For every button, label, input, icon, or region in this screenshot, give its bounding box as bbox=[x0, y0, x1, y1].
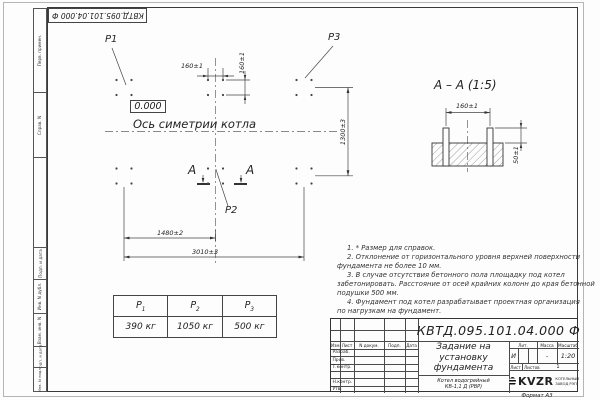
tb-doc-title: Задание на установку фундамента bbox=[418, 341, 509, 375]
dim-depth: 1300±3 bbox=[330, 127, 357, 136]
tb-row-tkontr: Т.контр. bbox=[333, 365, 352, 370]
kvzr-logo-caption: КОТЕЛЬНЫЙ ЗАВОД РЭП bbox=[555, 377, 579, 385]
tb-sheet-label: Лист bbox=[509, 365, 522, 370]
tb-lit-value: И bbox=[509, 348, 518, 363]
tb-scale-value: 1:20 bbox=[557, 348, 579, 363]
dim-total-width: 3010±3 bbox=[192, 248, 218, 256]
tb-scale-header: Масштаб bbox=[557, 343, 579, 348]
loads-table-value-row: 390 кг 1050 кг 500 кг bbox=[114, 317, 277, 338]
dim-section-protrusion: 50±1 bbox=[503, 150, 529, 159]
section-letter-right: А bbox=[246, 163, 254, 177]
note-line: фундамента не более 10 мм. bbox=[337, 262, 580, 271]
tb-row-utv: Утв. bbox=[333, 387, 342, 392]
tb-header-izm: Изм. bbox=[331, 343, 340, 348]
note-line: 1. * Размер для справок. bbox=[337, 244, 580, 253]
section-view-title: А – А (1:5) bbox=[434, 78, 497, 92]
plan-load-p1-label: Р1 bbox=[105, 34, 117, 45]
drawing-sheet: Перв. примен. Справ. N Подп. и дата Инв.… bbox=[0, 0, 600, 400]
note-line: 3. В случае отсутствия бетонного пола пл… bbox=[337, 271, 580, 280]
tb-lit-header: Лит. bbox=[509, 343, 537, 348]
loads-table-header-row: Р1 Р2 Р3 bbox=[114, 296, 277, 317]
elevation-value: 0.000 bbox=[134, 101, 161, 112]
notes-block: 1. * Размер для справок. 2. Отклонение о… bbox=[337, 244, 580, 316]
load-value: 1050 кг bbox=[168, 317, 222, 338]
dim-left-to-center: 1480±2 bbox=[157, 229, 183, 237]
note-line: по нагрузкам на фундамент. bbox=[337, 307, 580, 316]
tb-row-razrab: Разраб. bbox=[333, 350, 350, 355]
tb-designation: КВТД.095.101.04.000 Ф bbox=[418, 319, 579, 341]
dim-bolt-spacing-h: 160±1 bbox=[181, 62, 203, 70]
note-line: 4. Фундамент под котел разрабатывает про… bbox=[337, 298, 580, 307]
tb-mass-header: Масса bbox=[537, 343, 557, 348]
plan-load-p3-label: Р3 bbox=[328, 32, 340, 43]
dim-bolt-spacing-v: 160±1 bbox=[229, 58, 255, 68]
tb-header-ndoc: N докум. bbox=[354, 343, 384, 348]
kvzr-logo-text: KVZR bbox=[518, 375, 553, 388]
title-block: Изм. Лист N докум. Подп. Дата Разраб. Пр… bbox=[330, 318, 578, 392]
section-letter-left: А bbox=[188, 163, 196, 177]
tb-row-nkontr: Н.контр. bbox=[333, 380, 353, 385]
tb-row-prov: Пров. bbox=[333, 358, 346, 363]
dim-section-bolt-spacing: 160±1 bbox=[456, 102, 478, 110]
note-line: 2. Отклонение от горизонтального уровня … bbox=[337, 253, 580, 262]
axis-of-symmetry-label: Ось симетрии котла bbox=[133, 117, 256, 131]
loads-table: Р1 Р2 Р3 390 кг 1050 кг 500 кг bbox=[113, 295, 277, 338]
tb-logo: KVZR КОТЕЛЬНЫЙ ЗАВОД РЭП bbox=[509, 370, 579, 393]
note-line: подушки 500 мм. bbox=[337, 289, 580, 298]
tb-mass-value: - bbox=[537, 348, 557, 363]
load-symbol: Р2 bbox=[168, 296, 222, 317]
load-symbol: Р3 bbox=[222, 296, 276, 317]
tb-header-list: Лист bbox=[340, 343, 354, 348]
format-label: Формат А3 bbox=[497, 392, 577, 400]
elevation-box: 0.000 bbox=[130, 100, 166, 113]
plan-load-p2-label: Р2 bbox=[225, 205, 237, 216]
tb-header-data: Дата bbox=[405, 343, 418, 348]
note-line: забетонировать. Расстояние от осей крайн… bbox=[337, 280, 580, 289]
load-value: 500 кг bbox=[222, 317, 276, 338]
kvzr-logo-icon bbox=[509, 377, 516, 386]
tb-product: Котел водогрейный КВ-1,1 Д (РВР) bbox=[418, 375, 509, 393]
tb-header-podp: Подп. bbox=[384, 343, 405, 348]
tb-sheets-label: Листов bbox=[524, 365, 546, 370]
load-symbol: Р1 bbox=[114, 296, 168, 317]
load-value: 390 кг bbox=[114, 317, 168, 338]
